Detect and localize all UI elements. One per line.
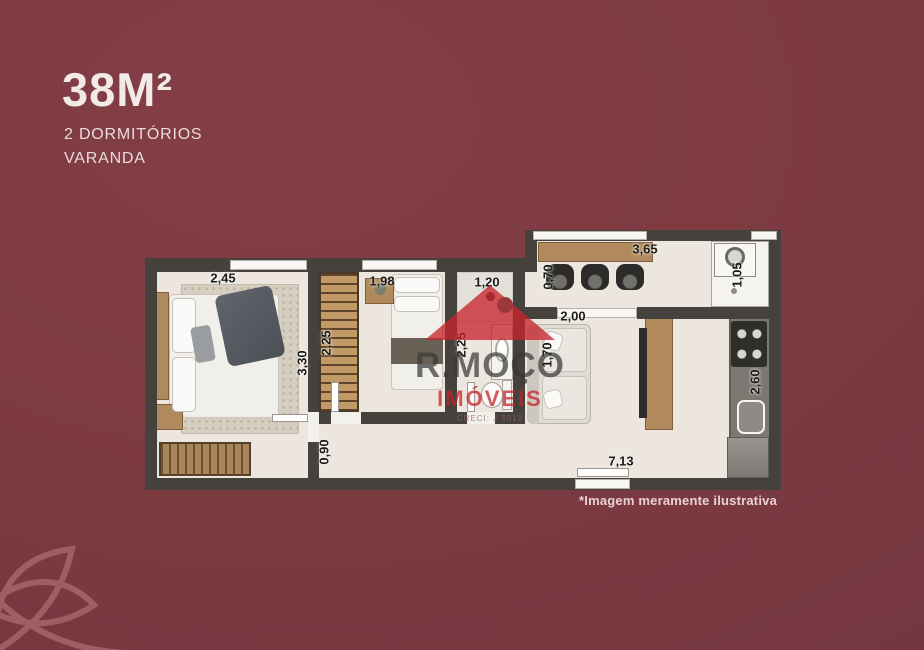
wall-right [769,230,781,478]
tv-rack [645,316,673,430]
dimension-label: 2,25 [319,330,334,355]
tv-panel [639,328,647,418]
dimension-label: 1,20 [474,275,499,290]
wall-bedroom1 [308,272,319,412]
dimension-label: 0,90 [317,439,332,464]
laundry-faucet-icon [731,288,737,294]
livingroom-sofa-back [527,324,539,424]
wall-top-left [145,258,537,272]
cooktop [731,321,767,367]
door-bedroom2-opening [331,412,361,424]
door-bedroom1-opening [308,412,319,442]
subtitle-varanda: VARANDA [64,150,146,168]
dimension-label: 0,70 [541,264,556,289]
door-bedroom1-leaf [272,414,308,422]
window-balcony [533,231,647,240]
bedroom1-bench [159,442,251,476]
floorplan: 2,45 3,30 2,25 1,98 1,20 2,25 0,70 3,65 … [145,230,781,492]
wall-bathroom-right [513,272,525,424]
dimension-label: 3,65 [632,242,657,257]
door-bedroom2-leaf [331,382,339,412]
wall-balcony-bottom [525,307,557,319]
window-bedroom1 [230,260,307,270]
dimension-label: 2,00 [560,309,585,324]
bedroom2-pillow [394,296,440,312]
wall-left [145,258,157,490]
bedroom2-pillow [394,277,440,293]
door-entrance-opening [575,479,630,489]
dimension-label: 2,25 [454,332,469,357]
dimension-label: 1,70 [540,342,555,367]
bedroom2-blanket [391,338,443,364]
flyer-background: 38M² 2 DORMITÓRIOS VARANDA [0,0,924,650]
bathroom-toilet-tank [502,380,512,410]
wall-bedroom2-bottom [361,412,457,424]
bar-stool [616,264,644,290]
page-title: 38M² [62,66,173,113]
window-laundry [751,231,777,240]
dimension-label: 2,45 [210,271,235,286]
window-bedroom2 [362,260,437,270]
disclaimer-text: *Imagem meramente ilustrativa [579,493,777,508]
door-bathroom-opening [467,412,495,424]
bathroom-sink [495,338,509,362]
subtitle-dormitorios: 2 DORMITÓRIOS [64,126,202,144]
wall-balcony-bottom [637,307,769,319]
door-bathroom-leaf [467,382,475,412]
flower-ornament [0,495,244,650]
bedroom1-pillow [172,357,196,412]
wall-bathroom-bottom [457,412,467,424]
dimension-label: 1,05 [730,262,745,287]
bedroom1-headboard [156,292,169,400]
kitchen-counter-end [727,437,769,478]
dimension-label: 2,60 [748,369,763,394]
bathroom-toilet [481,382,503,408]
wall-bottom [145,478,781,490]
door-entrance-leaf [577,468,629,477]
wall-bedroom2-bottom [319,412,331,424]
dimension-label: 3,30 [295,350,310,375]
bar-stool [581,264,609,290]
kitchen-sink [737,400,765,434]
shower-head-icon [486,292,495,301]
dimension-label: 1,98 [369,274,394,289]
dimension-label: 7,13 [608,454,633,469]
